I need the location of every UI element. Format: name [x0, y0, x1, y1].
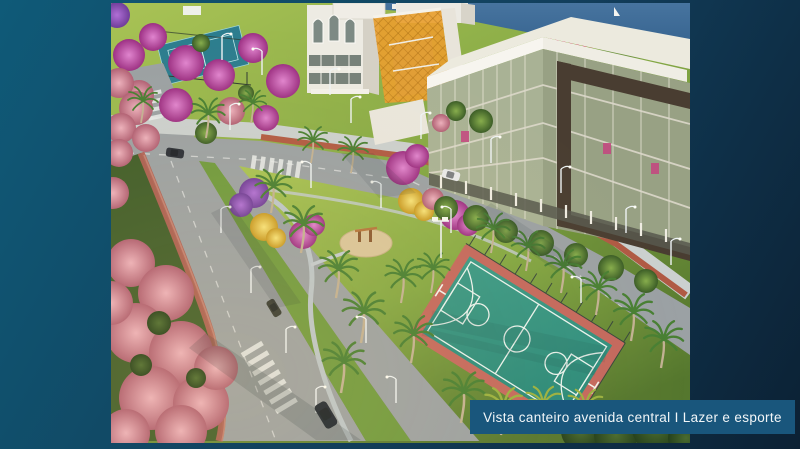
presentation-slide: Vista canteiro avenida central I Lazer e…: [0, 0, 800, 449]
render-scene: [111, 3, 690, 443]
avenue-render-image: [111, 3, 690, 443]
caption-text: Vista canteiro avenida central I Lazer e…: [483, 410, 782, 425]
caption-bar: Vista canteiro avenida central I Lazer e…: [470, 400, 795, 434]
light-and-shadows: [111, 3, 690, 443]
